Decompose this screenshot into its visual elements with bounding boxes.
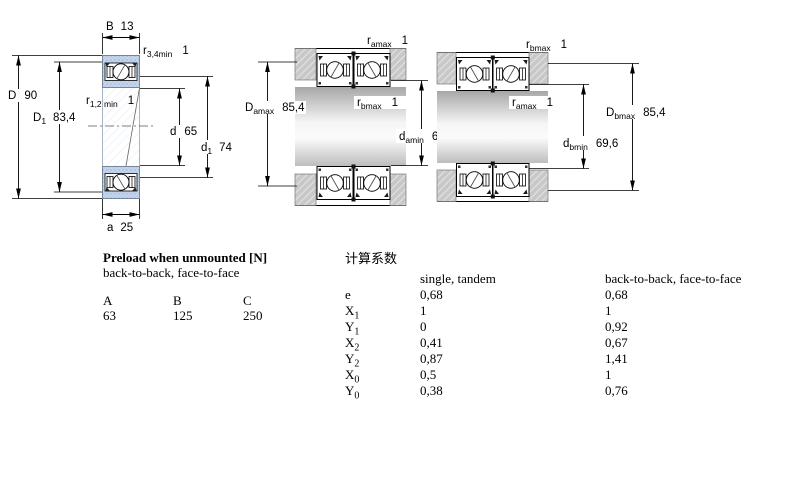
preload-col-header-A: A [103,293,173,308]
factor-value-single: 0,87 [420,351,443,366]
factor-value-paired: 1 [605,367,612,382]
dim-label-d: d65 [170,126,197,138]
factors-col-back-to-back: back-to-back, face-to-face [605,271,741,286]
factor-value-single: 0 [420,319,427,334]
dim-label-B: B13 [106,21,133,33]
factor-value-single: 0,68 [420,287,443,302]
face-to-face-pair-diagram: rbmax1 ramax1 dbmin69,6 Dbmax85,4 [437,39,669,202]
preload-table: Preload when unmounted [N] back-to-back,… [103,250,267,280]
factor-value-paired: 1,41 [605,351,628,366]
factor-value-single: 1 [420,303,427,318]
factor-value-paired: 1 [605,303,612,318]
factor-value-single: 0,41 [420,335,443,350]
bearing-datasheet-page: B13 r3,4min1 r1,2 min1 D90 D183,4 d65 d1… [0,0,800,500]
preload-col-header-C: C [243,293,313,308]
factor-value-paired: 0,67 [605,335,628,350]
factor-symbol: Y0 [345,383,359,404]
dim-label-a: a25 [107,222,133,234]
back-to-back-pair-diagram: ramax1 Damax85,4 rbmax1 damin69,6 [242,35,459,206]
factor-value-single: 0,5 [420,367,436,382]
factors-col-single-tandem: single, tandem [420,271,496,286]
dim-label-D1: D183,4 [33,112,76,126]
dim-label-ramax-a: ramax1 [367,35,408,49]
factor-value-single: 0,38 [420,383,443,398]
preload-value-A: 63 [103,308,116,323]
bearing-drawings: B13 r3,4min1 r1,2 min1 D90 D183,4 d65 d1… [0,0,800,245]
single-bearing-diagram: B13 r3,4min1 r1,2 min1 D90 D183,4 d65 d1… [4,21,237,234]
factors-table-title: 计算系数 [345,251,397,266]
preload-value-C: 250 [243,308,263,323]
dim-label-rbmax-b: rbmax1 [526,39,567,53]
factor-value-paired: 0,92 [605,319,628,334]
preload-value-B: 125 [173,308,193,323]
preload-col-header-B: B [173,293,243,308]
dim-label-r34min: r3,4min1 [143,45,189,59]
preload-table-title: Preload when unmounted [N] [103,250,267,265]
preload-table-subtitle: back-to-back, face-to-face [103,265,267,280]
factor-value-paired: 0,76 [605,383,628,398]
factor-value-paired: 0,68 [605,287,628,302]
